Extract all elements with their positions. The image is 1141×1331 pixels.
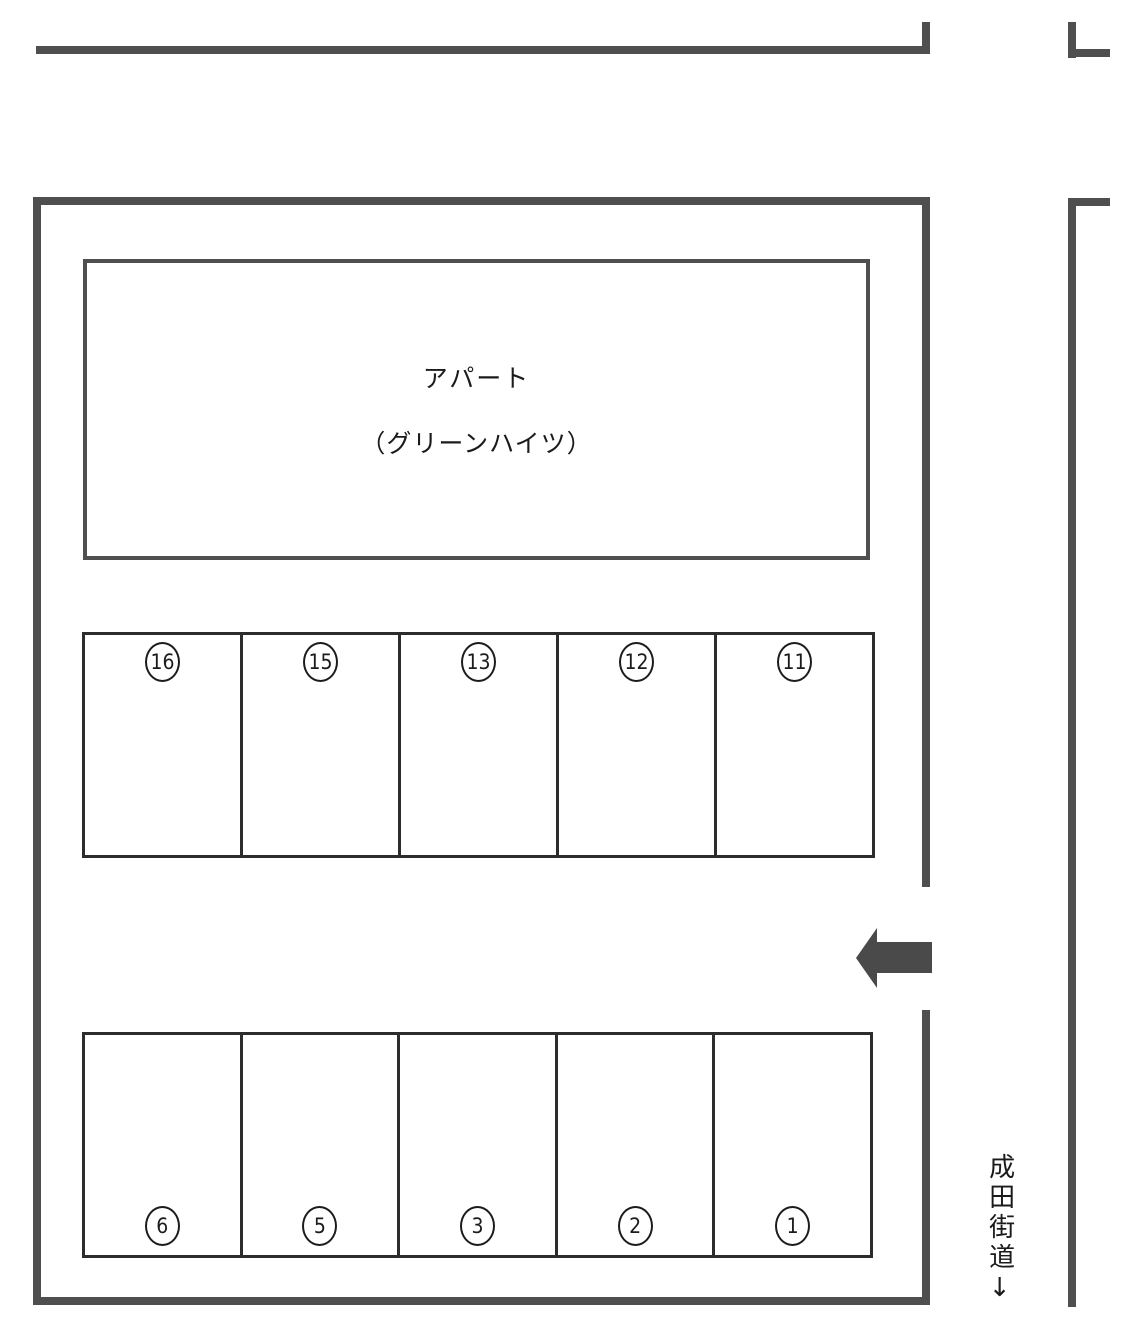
space-number-badge: 15 [303, 642, 338, 682]
apartment-building: アパート （グリーンハイツ） [83, 259, 870, 560]
parking-space: 1 [715, 1035, 870, 1255]
space-number-badge: 13 [461, 642, 496, 682]
top-road-corner-tick [922, 22, 930, 54]
top-road-edge-line [36, 46, 930, 54]
space-number-badge: 2 [618, 1206, 653, 1246]
space-number-badge: 1 [775, 1206, 810, 1246]
parking-lot-map: アパート （グリーンハイツ） 16 15 13 12 11 6 5 3 2 [0, 0, 1141, 1331]
parking-row-lower: 6 5 3 2 1 [82, 1032, 873, 1258]
boundary-left [33, 197, 41, 1305]
parking-space: 2 [558, 1035, 716, 1255]
entrance-left-arrow-icon [856, 928, 932, 988]
boundary-right-upper [922, 197, 930, 887]
parking-space: 11 [717, 635, 872, 855]
parking-space: 6 [85, 1035, 243, 1255]
intersection-corner-horizontal [1068, 49, 1110, 57]
space-number-badge: 5 [302, 1206, 337, 1246]
parking-space: 13 [401, 635, 559, 855]
parking-space: 3 [400, 1035, 558, 1255]
boundary-right-lower [922, 1010, 930, 1305]
parking-space: 12 [559, 635, 717, 855]
parking-space: 16 [85, 635, 243, 855]
arrow-head [856, 928, 877, 988]
parking-row-upper: 16 15 13 12 11 [82, 632, 875, 858]
space-number-badge: 11 [777, 642, 812, 682]
space-number-badge: 12 [619, 642, 654, 682]
right-road-edge-line [1068, 198, 1076, 1307]
space-number-badge: 3 [460, 1206, 495, 1246]
arrow-body [876, 942, 932, 973]
building-name-line1: アパート [87, 359, 866, 395]
boundary-top [33, 197, 930, 205]
right-road-corner-tick [1076, 198, 1110, 206]
road-name-label: 成田街道↓ [985, 1153, 1014, 1313]
parking-space: 15 [243, 635, 401, 855]
boundary-bottom [33, 1297, 930, 1305]
parking-space: 5 [243, 1035, 401, 1255]
space-number-badge: 6 [145, 1206, 180, 1246]
building-name-line2: （グリーンハイツ） [87, 424, 866, 460]
space-number-badge: 16 [145, 642, 180, 682]
